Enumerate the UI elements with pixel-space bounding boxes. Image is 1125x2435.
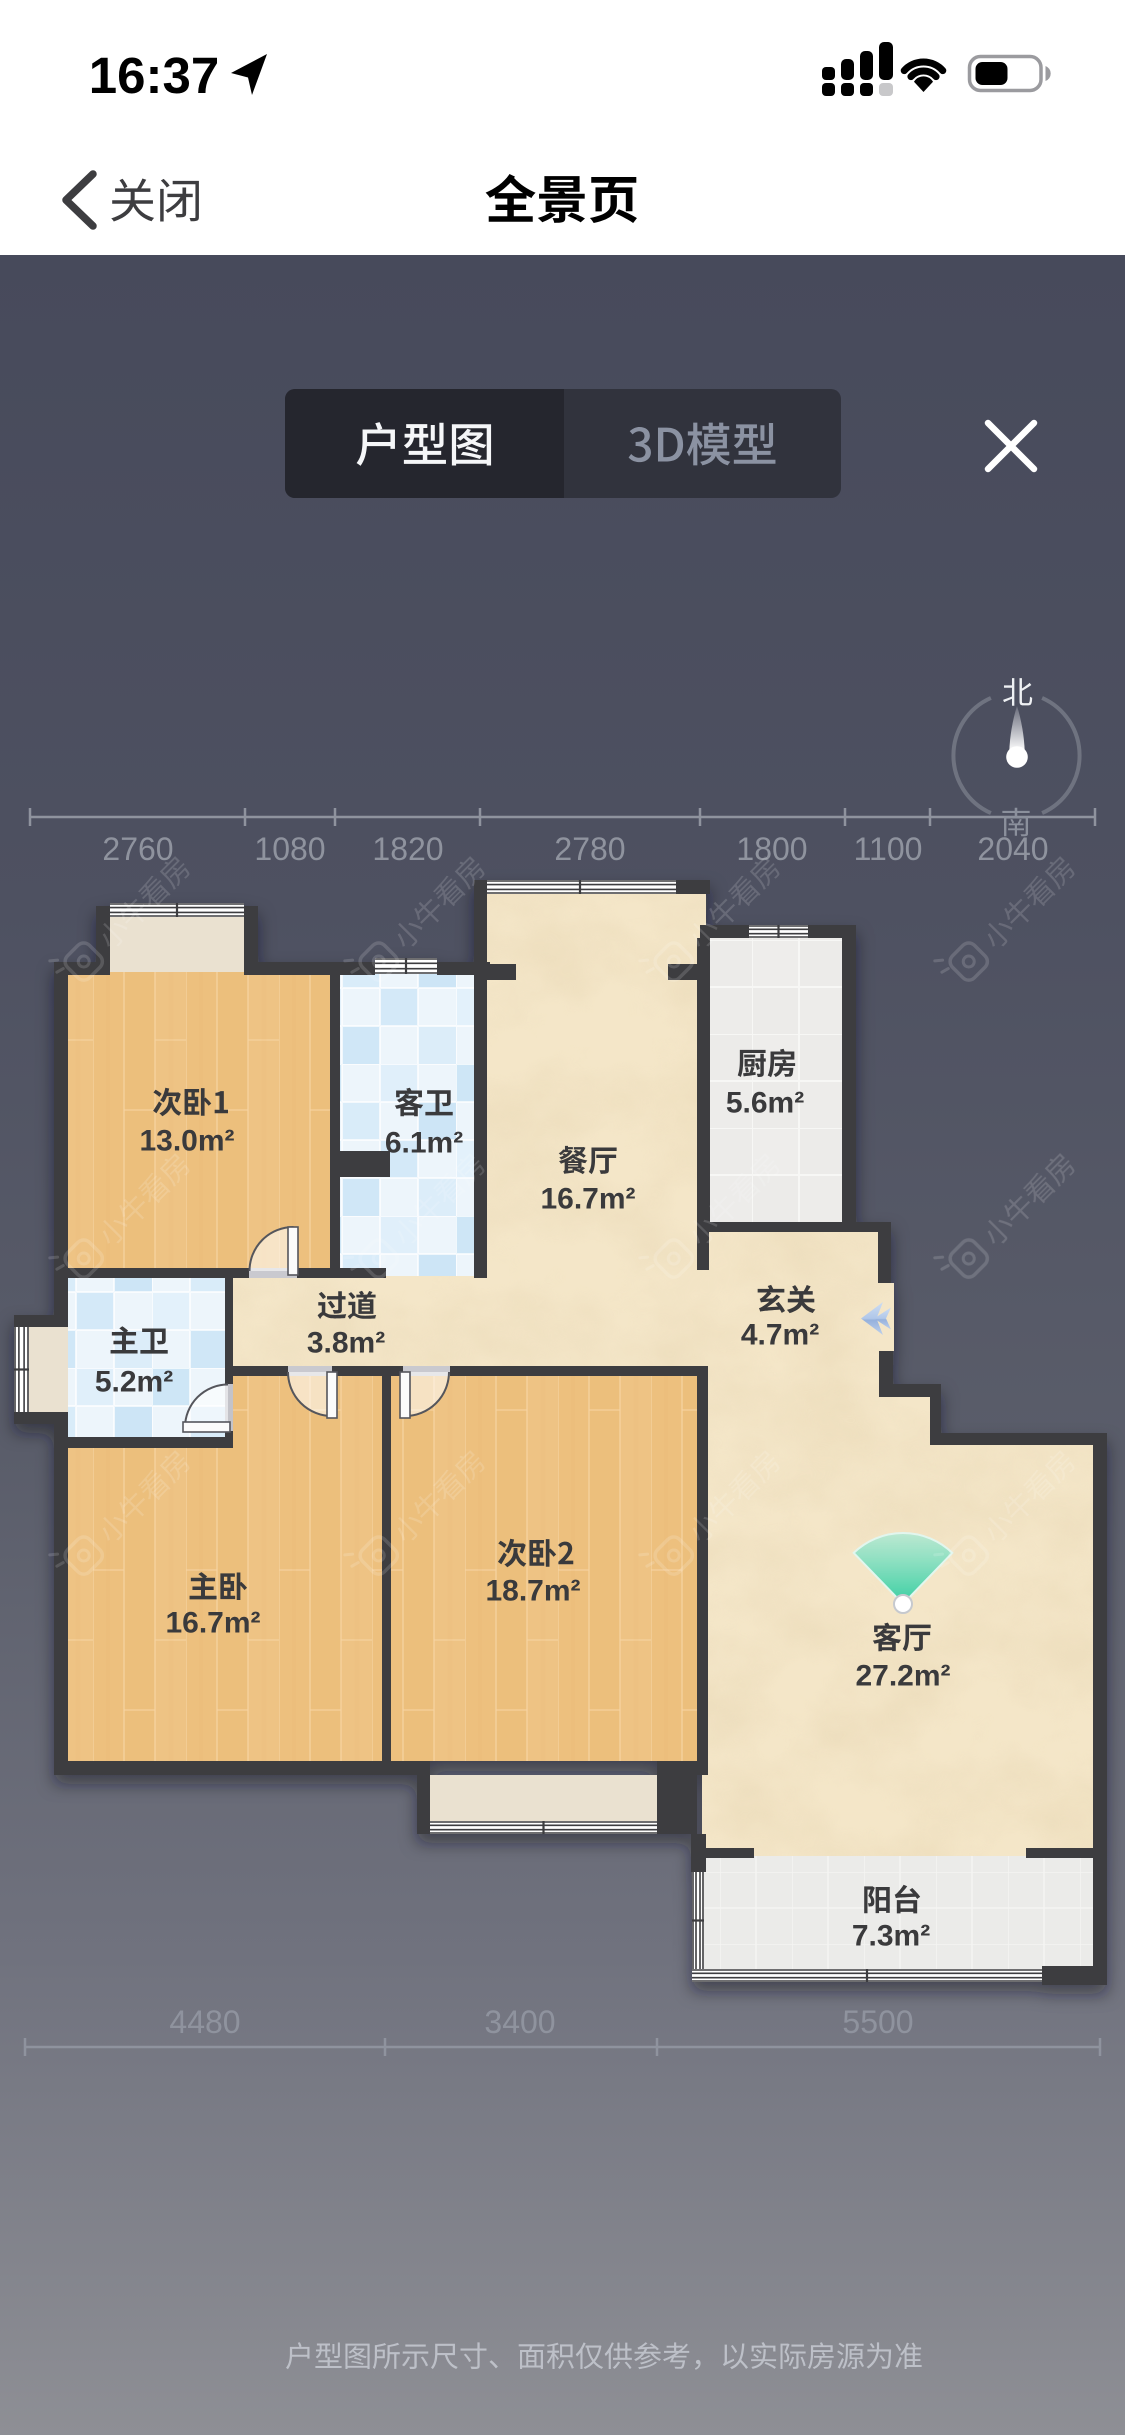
svg-text:1800: 1800 xyxy=(736,831,807,867)
svg-text:4.7m²: 4.7m² xyxy=(741,1319,819,1352)
svg-text:16:37: 16:37 xyxy=(89,47,219,104)
svg-text:4480: 4480 xyxy=(169,2004,240,2040)
svg-text:16.7m²: 16.7m² xyxy=(165,1607,260,1640)
svg-text:2760: 2760 xyxy=(102,831,173,867)
svg-text:1080: 1080 xyxy=(254,831,325,867)
svg-text:13.0m²: 13.0m² xyxy=(139,1125,234,1158)
svg-text:5.2m²: 5.2m² xyxy=(95,1366,173,1399)
svg-text:2780: 2780 xyxy=(554,831,625,867)
svg-text:3.8m²: 3.8m² xyxy=(307,1327,385,1360)
svg-text:27.2m²: 27.2m² xyxy=(855,1660,950,1693)
svg-text:3400: 3400 xyxy=(484,2004,555,2040)
svg-text:16.7m²: 16.7m² xyxy=(540,1183,635,1216)
svg-text:2040: 2040 xyxy=(977,831,1048,867)
svg-text:5.6m²: 5.6m² xyxy=(726,1087,804,1120)
svg-text:7.3m²: 7.3m² xyxy=(852,1920,930,1953)
svg-text:5500: 5500 xyxy=(842,2004,913,2040)
svg-text:1100: 1100 xyxy=(854,831,923,867)
svg-text:18.7m²: 18.7m² xyxy=(485,1575,580,1608)
svg-text:6.1m²: 6.1m² xyxy=(385,1127,463,1160)
svg-text:1820: 1820 xyxy=(372,831,443,867)
